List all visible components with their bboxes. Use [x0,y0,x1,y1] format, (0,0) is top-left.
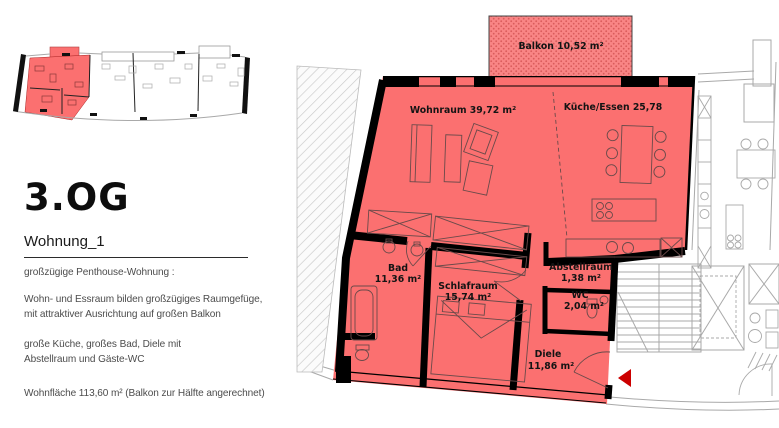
elevator [692,266,744,350]
room-label-wc: WC [571,290,588,301]
room-label-schlafraum: Schlafraum [438,281,498,292]
mini-end-wall-left [13,54,26,112]
mini-balcony-3 [199,46,230,58]
entrance-arrow-icon [618,369,631,387]
room-area-schlafraum: 15,74 m² [445,292,491,303]
description-line: Abstellraum und Gäste-WC [24,353,144,365]
living-area-summary: Wohnfläche 113,60 m² (Balkon zur Hälfte … [24,387,265,399]
room-area-wc: 2,04 m² [564,301,604,312]
overview-miniplan [2,34,292,144]
description-line: große Küche, großes Bad, Diele mit [24,338,181,350]
apartment-title: Wohnung_1 [24,233,248,258]
room-label-balkon: Balkon 10,52 m² [518,41,603,52]
room-label-bad: Bad [388,263,408,274]
room-label-kueche-essen: Küche/Essen 25,78 [564,102,662,113]
room-area-diele: 11,86 m² [528,361,574,372]
floor-title: 3.OG [24,176,130,219]
room-label-wohnraum: Wohnraum 39,72 m² [410,105,516,116]
room-label-diele: Diele [535,349,562,360]
floorplan-sheet: 3.OG Wohnung_1 großzügige Penthouse-Wohn… [0,0,779,428]
sidebar: 3.OG Wohnung_1 großzügige Penthouse-Wohn… [0,0,295,428]
room-area-bad: 11,36 m² [375,274,421,285]
mini-balcony-2 [102,52,174,61]
neighbor-kitchen [698,96,711,268]
mini-end-wall-right [242,57,250,114]
neighbor-dining-table [737,139,775,189]
description-line: großzügige Penthouse-Wohnung : [24,266,174,278]
room-label-abstellraum: Abstellraum [549,262,613,273]
miniplan-building [13,46,250,121]
description-line: mit attraktiver Ausrichtung auf großen B… [24,308,221,320]
description-line: Wohn- und Essraum bilden großzügiges Rau… [24,293,262,305]
main-floorplan: Balkon 10,52 m² Wohnraum 39,72 m² Küche/… [295,0,779,428]
stairwell [617,264,701,352]
room-area-abstellraum: 1,38 m² [561,273,601,284]
mini-highlighted-apartment [25,55,90,120]
